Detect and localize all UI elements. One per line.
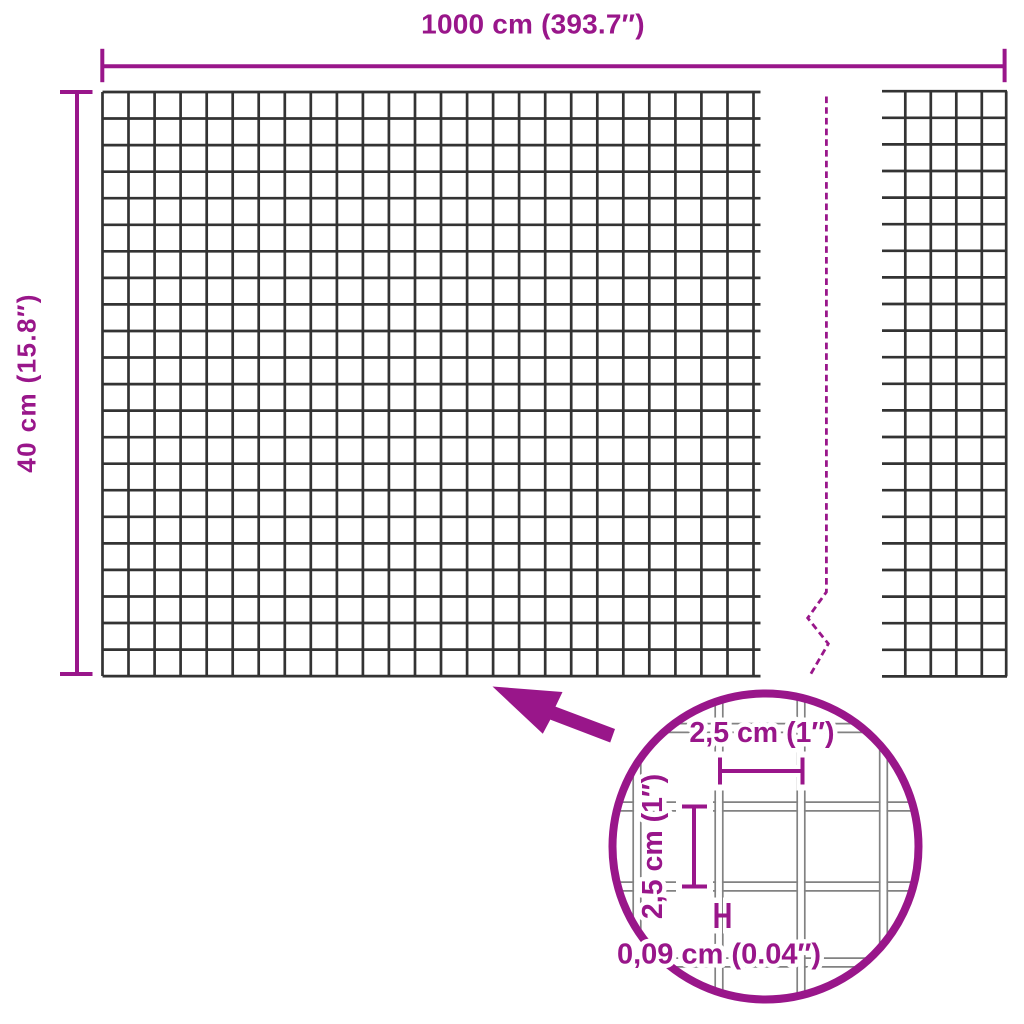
svg-text:2,5 cm (1″): 2,5 cm (1″) <box>689 717 834 749</box>
svg-text:40 cm (15.8″): 40 cm (15.8″) <box>12 293 42 473</box>
svg-text:1000 cm (393.7″): 1000 cm (393.7″) <box>421 9 645 40</box>
svg-text:2,5 cm (1″): 2,5 cm (1″) <box>637 774 669 919</box>
svg-text:0,09 cm (0.04″): 0,09 cm (0.04″) <box>617 939 821 971</box>
